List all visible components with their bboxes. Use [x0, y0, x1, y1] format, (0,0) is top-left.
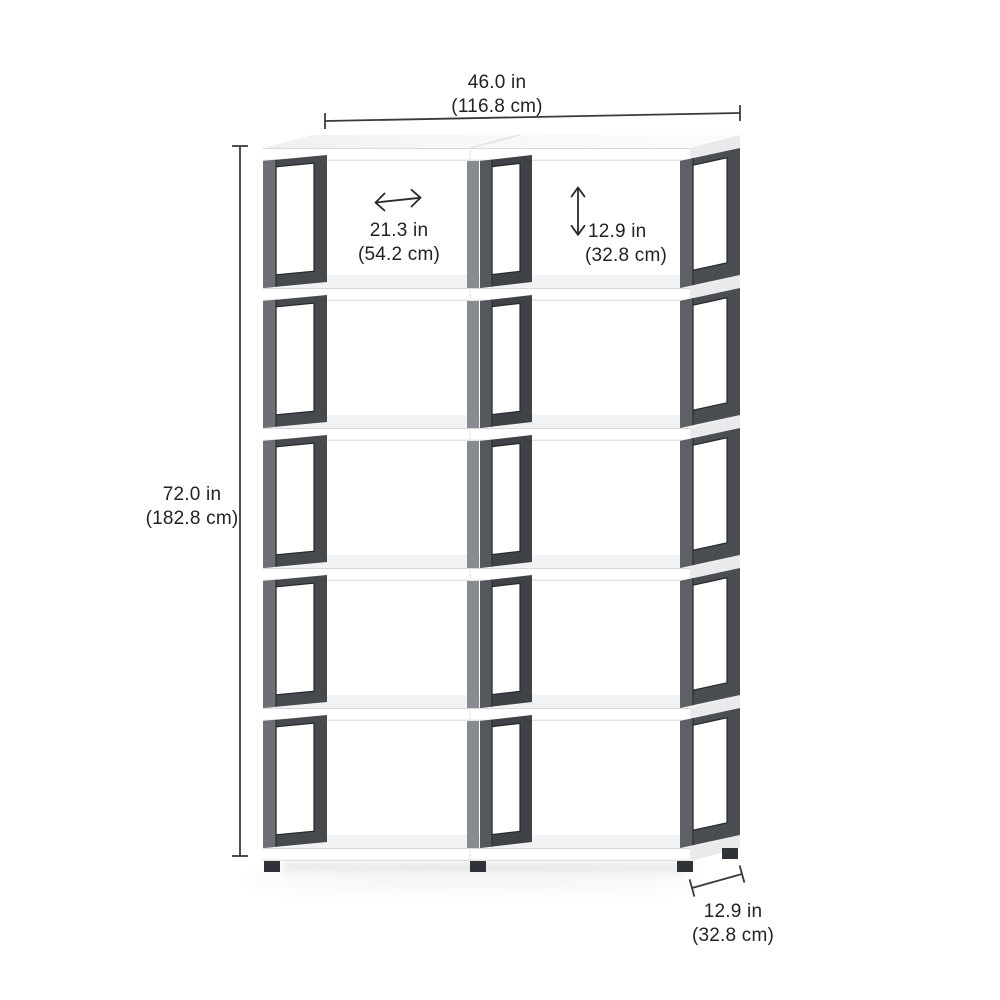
overall-width-cm: (116.8 cm)	[451, 96, 542, 117]
frame-front-post	[263, 440, 276, 568]
frame-middle-post	[467, 581, 479, 708]
board-seam	[469, 428, 470, 441]
product-dimension-diagram: 46.0 in (116.8 cm) 72.0 in (182.8 cm) 21…	[0, 0, 1000, 1000]
frame-front-post	[680, 578, 693, 708]
compartment-width-cm: (54.2 cm)	[358, 244, 440, 265]
shelf-board-edge	[263, 848, 690, 849]
compartment-height-inches: 12.9 in	[588, 221, 646, 242]
shelf-board-edge	[263, 580, 690, 581]
frame-ring-window	[276, 303, 314, 415]
frame-front-post	[680, 158, 693, 288]
frame-middle-post	[467, 301, 479, 428]
compartment-height-cm: (32.8 cm)	[585, 245, 667, 266]
depth-cm: (32.8 cm)	[692, 925, 774, 946]
frame-ring-window	[693, 158, 727, 270]
overall-height-cm: (182.8 cm)	[146, 508, 239, 529]
floor-shadow	[250, 869, 700, 891]
frame-front-post	[680, 718, 693, 848]
frame-ring-window	[276, 723, 314, 835]
frame-middle-post	[467, 161, 479, 288]
frame-front-post	[480, 580, 492, 708]
frame-middle-post	[467, 721, 479, 848]
shelf-foot	[264, 861, 280, 872]
depth-dimension: 12.9 in (32.8 cm)	[690, 865, 774, 946]
board-seam	[469, 848, 470, 861]
shelf-board-front	[263, 148, 690, 161]
frame-ring-window	[693, 438, 727, 550]
frame-front-post	[680, 298, 693, 428]
frame-front-post	[680, 438, 693, 568]
frame-ring-window	[492, 443, 520, 554]
frame-front-post	[480, 440, 492, 568]
shelf-board-front	[263, 288, 690, 301]
shelf-board-edge	[263, 300, 690, 301]
overall-width-dimension: 46.0 in (116.8 cm)	[325, 72, 740, 129]
frame-ring-window	[276, 163, 314, 275]
shelf-board-edge	[263, 720, 690, 721]
frame-ring-window	[693, 578, 727, 690]
shelf-board-front	[263, 428, 690, 441]
frame-front-post	[263, 300, 276, 428]
shelf-foot	[677, 861, 693, 872]
board-seam	[469, 708, 470, 721]
overall-width-inches: 46.0 in	[468, 72, 526, 93]
shelf-board-front	[263, 708, 690, 721]
frame-ring-window	[693, 298, 727, 410]
board-seam	[469, 148, 470, 161]
compartment-height-annotation: 12.9 in (32.8 cm)	[572, 188, 668, 267]
frame-front-post	[480, 720, 492, 848]
dimension-line	[692, 874, 742, 888]
frame-ring-window	[492, 583, 520, 694]
board-seam	[469, 288, 470, 301]
compartment-width-inches: 21.3 in	[370, 220, 428, 241]
shelf-foot	[722, 848, 738, 859]
overall-height-inches: 72.0 in	[163, 484, 221, 505]
frame-ring-window	[276, 443, 314, 555]
shelf-board-edge	[263, 428, 690, 429]
shelf-foot	[470, 861, 486, 872]
frame-ring-window	[492, 723, 520, 834]
shelf-board-edge	[263, 860, 690, 861]
shelf-board-edge	[263, 568, 690, 569]
frame-front-post	[480, 300, 492, 428]
shelf-board-top	[263, 135, 740, 148]
frame-front-post	[263, 720, 276, 848]
frame-ring-window	[693, 718, 727, 830]
shelf-board-edge	[263, 288, 690, 289]
overall-height-dimension: 72.0 in (182.8 cm)	[146, 146, 248, 856]
horizontal-double-arrow-icon	[376, 190, 421, 211]
shelf-board-edge	[263, 708, 690, 709]
frame-front-post	[263, 580, 276, 708]
vertical-double-arrow-icon	[572, 188, 585, 235]
frame-front-post	[480, 160, 492, 288]
shelf-board-edge	[263, 160, 690, 161]
shelf-board-edge	[263, 440, 690, 441]
shelf-board-front	[263, 848, 690, 861]
frame-ring-window	[492, 163, 520, 274]
frame-ring-window	[276, 583, 314, 695]
diagram-canvas: 46.0 in (116.8 cm) 72.0 in (182.8 cm) 21…	[0, 0, 1000, 1000]
shelf-board-front	[263, 568, 690, 581]
frame-middle-post	[467, 441, 479, 568]
compartment-width-annotation: 21.3 in (54.2 cm)	[358, 190, 440, 265]
depth-inches: 12.9 in	[704, 901, 762, 922]
frame-ring-window	[492, 303, 520, 414]
shelf-board-edge	[263, 148, 690, 149]
frame-front-post	[263, 160, 276, 288]
board-seam	[469, 568, 470, 581]
